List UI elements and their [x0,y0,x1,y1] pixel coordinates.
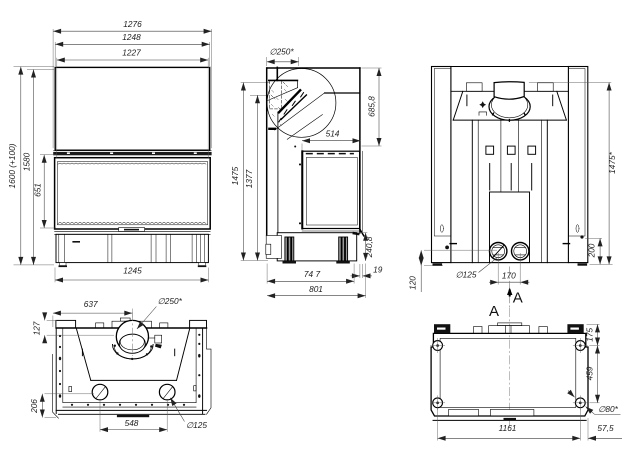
svg-text:514: 514 [326,129,340,139]
svg-text:57,5: 57,5 [597,423,614,433]
svg-text:∅125: ∅125 [455,270,476,280]
svg-text:A: A [513,289,523,306]
svg-text:1377: 1377 [244,169,254,188]
svg-text:127: 127 [32,321,42,335]
svg-text:240,8: 240,8 [364,236,374,258]
svg-text:206: 206 [29,399,39,414]
svg-text:459: 459 [584,366,594,380]
svg-text:∅125: ∅125 [186,420,207,430]
svg-text:74 7: 74 7 [304,269,321,279]
svg-text:200: 200 [587,243,597,258]
svg-text:1227: 1227 [122,48,141,58]
svg-text:120: 120 [408,276,418,290]
svg-text:651: 651 [33,183,43,197]
svg-text:1600 (+100): 1600 (+100) [7,143,17,188]
svg-text:637: 637 [84,299,98,309]
svg-text:1276: 1276 [123,19,142,29]
svg-text:175: 175 [584,327,594,341]
svg-text:1245: 1245 [123,265,142,275]
svg-text:19: 19 [373,264,383,274]
svg-text:170: 170 [502,270,516,280]
svg-text:A: A [489,303,499,320]
svg-text:548: 548 [125,418,139,428]
svg-text:∅80*: ∅80* [598,404,618,414]
svg-text:1161: 1161 [499,423,517,433]
svg-text:1248: 1248 [122,32,141,42]
svg-text:1580: 1580 [22,152,32,171]
svg-text:∅250*: ∅250* [158,296,183,306]
svg-text:∅250*: ∅250* [269,47,294,57]
svg-text:801: 801 [309,284,323,294]
svg-text:1475: 1475 [230,166,240,185]
svg-text:685,8: 685,8 [366,96,376,117]
svg-text:1475*: 1475* [607,151,617,173]
